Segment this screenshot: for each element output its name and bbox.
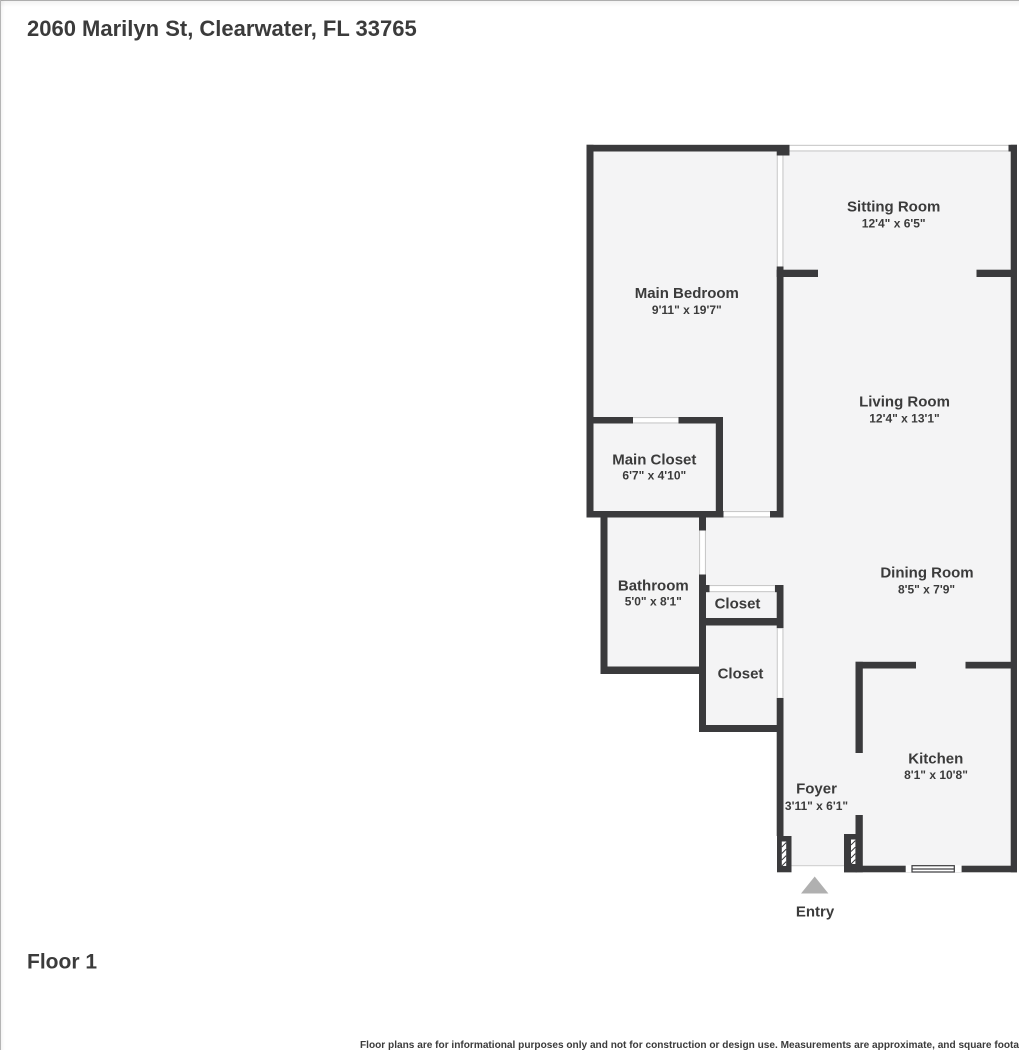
svg-text:Closet: Closet: [718, 666, 764, 683]
svg-text:6'7" x 4'10": 6'7" x 4'10": [622, 469, 686, 483]
svg-text:Foyer: Foyer: [796, 781, 837, 798]
svg-text:9'11" x 19'7": 9'11" x 19'7": [652, 303, 722, 317]
svg-text:Closet: Closet: [715, 596, 761, 613]
svg-text:Sitting Room: Sitting Room: [847, 199, 940, 216]
svg-text:12'4" x 13'1": 12'4" x 13'1": [869, 412, 939, 426]
svg-text:Floor 1: Floor 1: [27, 951, 97, 974]
svg-text:Main Bedroom: Main Bedroom: [635, 285, 739, 302]
svg-text:3'11" x 6'1": 3'11" x 6'1": [785, 799, 848, 813]
svg-text:8'1" x 10'8": 8'1" x 10'8": [904, 768, 968, 782]
svg-text:Bathroom: Bathroom: [618, 578, 689, 595]
svg-text:Living Room: Living Room: [859, 394, 950, 411]
svg-text:Entry: Entry: [796, 904, 835, 921]
svg-text:Kitchen: Kitchen: [908, 751, 963, 768]
svg-text:5'0" x 8'1": 5'0" x 8'1": [625, 595, 682, 609]
svg-text:Dining Room: Dining Room: [880, 565, 973, 582]
svg-text:Main Closet: Main Closet: [612, 452, 696, 469]
svg-text:2060 Marilyn St, Clearwater, F: 2060 Marilyn St, Clearwater, FL 33765: [27, 16, 417, 41]
svg-text:8'5" x 7'9": 8'5" x 7'9": [898, 583, 955, 597]
svg-text:12'4" x 6'5": 12'4" x 6'5": [862, 217, 926, 231]
svg-text:Floor plans are for informatio: Floor plans are for informational purpos…: [360, 1040, 1019, 1050]
